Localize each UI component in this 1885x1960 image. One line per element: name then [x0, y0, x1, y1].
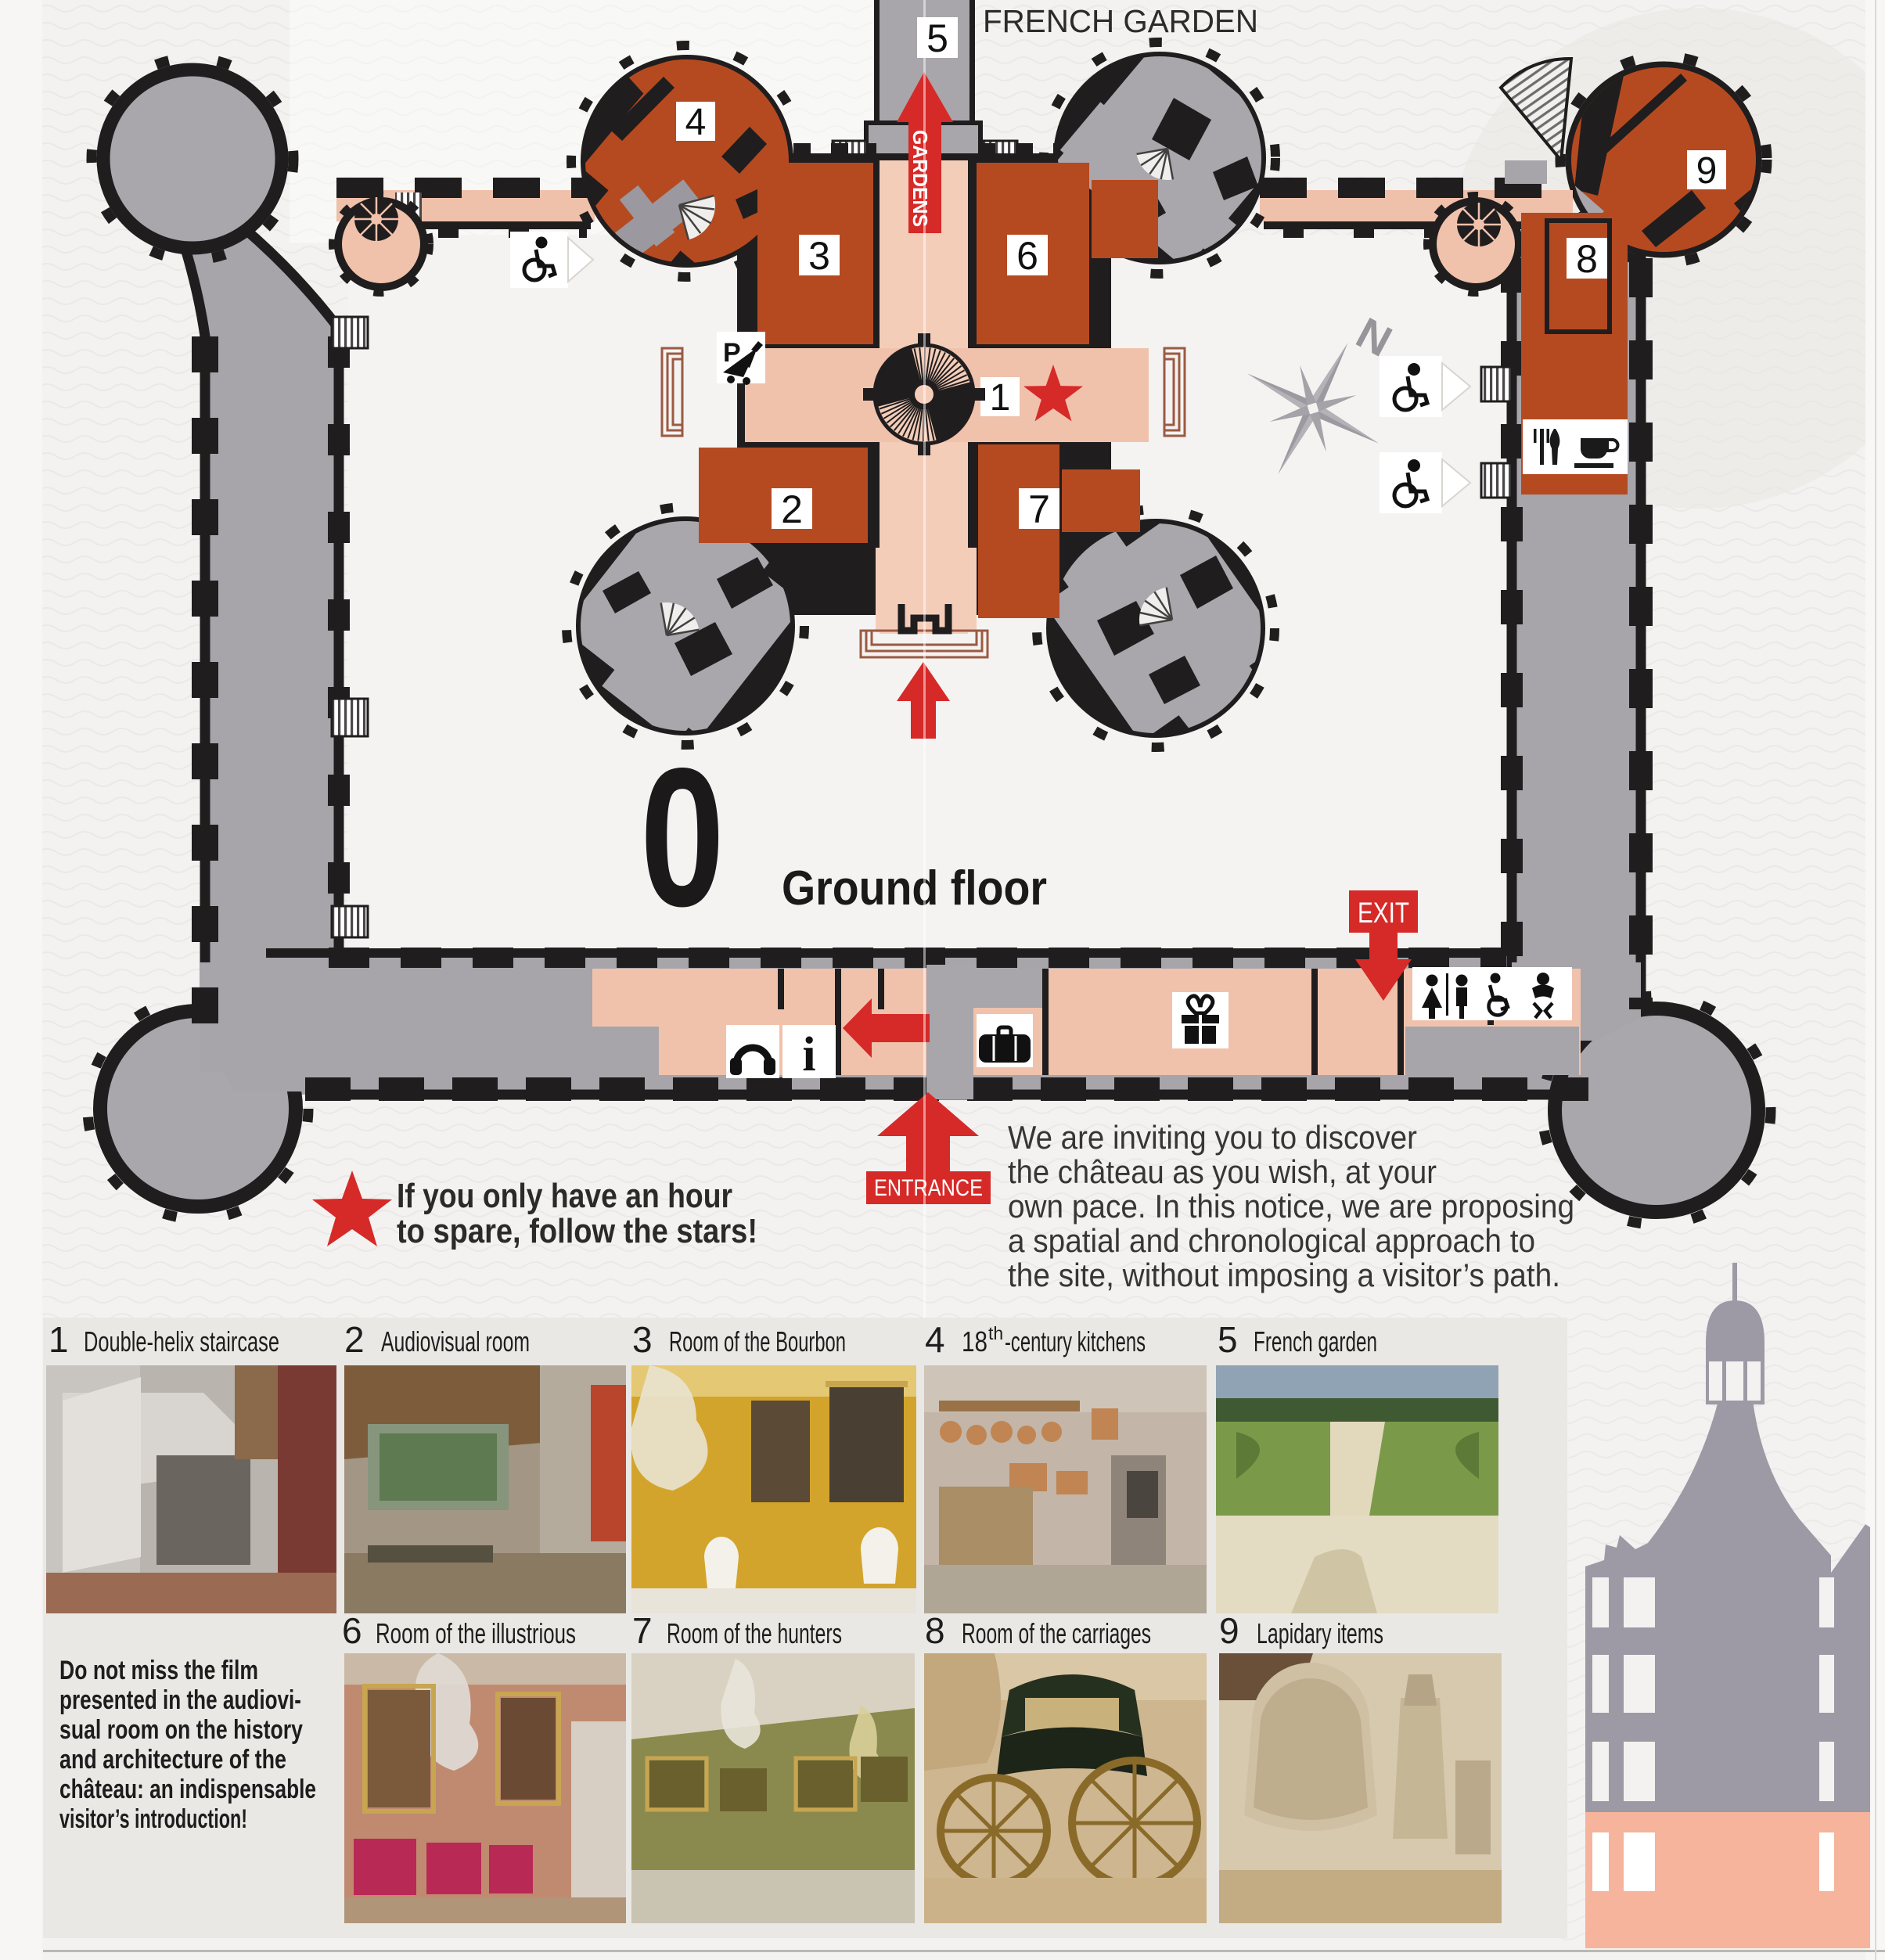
svg-text:FRENCH GARDEN: FRENCH GARDEN [983, 3, 1258, 39]
svg-text:EXIT: EXIT [1358, 897, 1409, 929]
svg-text:3: 3 [808, 234, 830, 278]
svg-text:Audiovisual room: Audiovisual room [381, 1325, 530, 1358]
svg-text:1: 1 [990, 377, 1011, 419]
svg-text:th: th [988, 1323, 1003, 1343]
svg-text:We are inviting you to discove: We are inviting you to discover [1008, 1119, 1417, 1156]
svg-text:French garden: French garden [1254, 1325, 1377, 1358]
svg-text:7: 7 [1028, 487, 1050, 531]
svg-text:4: 4 [685, 102, 707, 143]
svg-text:Ground floor: Ground floor [782, 861, 1047, 915]
svg-text:-century kitchens: -century kitchens [1005, 1325, 1146, 1358]
svg-text:Do not miss the film: Do not miss the film [59, 1656, 258, 1685]
svg-text:3: 3 [632, 1319, 653, 1360]
svg-text:7: 7 [632, 1610, 653, 1651]
svg-text:Lapidary items: Lapidary items [1257, 1617, 1383, 1649]
svg-text:0: 0 [640, 728, 725, 948]
svg-text:2: 2 [781, 487, 803, 531]
svg-text:9: 9 [1219, 1610, 1239, 1651]
svg-text:the château as you wish, at yo: the château as you wish, at your [1008, 1153, 1437, 1190]
svg-text:8: 8 [1576, 237, 1598, 281]
svg-text:6: 6 [342, 1610, 362, 1651]
svg-text:Room of the Bourbon: Room of the Bourbon [669, 1325, 846, 1358]
svg-text:4: 4 [925, 1319, 945, 1360]
svg-text:GARDENS: GARDENS [908, 130, 932, 227]
svg-text:i: i [802, 1028, 815, 1081]
svg-text:presented in the audiovi-: presented in the audiovi- [59, 1685, 301, 1715]
svg-text:9: 9 [1696, 150, 1718, 192]
svg-text:Double-helix staircase: Double-helix staircase [84, 1325, 279, 1358]
svg-text:5: 5 [926, 16, 948, 60]
svg-text:and architecture of the: and architecture of the [59, 1745, 286, 1775]
svg-text:6: 6 [1016, 234, 1038, 278]
svg-text:Room of the hunters: Room of the hunters [667, 1617, 842, 1649]
svg-text:2: 2 [344, 1319, 365, 1360]
svg-text:1: 1 [49, 1319, 69, 1360]
svg-text:château: an indispensable: château: an indispensable [59, 1775, 316, 1804]
svg-text:If you only have an hour: If you only have an hour [397, 1177, 732, 1215]
svg-text:the site, without imposing a v: the site, without imposing a visitor’s p… [1008, 1257, 1560, 1293]
svg-text:a spatial and chronological ap: a spatial and chronological approach to [1008, 1222, 1535, 1259]
svg-text:visitor’s introduction!: visitor’s introduction! [59, 1804, 247, 1834]
svg-text:5: 5 [1218, 1319, 1238, 1360]
svg-text:to spare, follow the stars!: to spare, follow the stars! [397, 1212, 757, 1250]
svg-text:sual room on the history: sual room on the history [59, 1715, 303, 1745]
svg-text:ENTRANCE: ENTRANCE [874, 1175, 983, 1201]
svg-text:own pace. In this notice, we a: own pace. In this notice, we are proposi… [1008, 1188, 1574, 1225]
svg-text:Room of the carriages: Room of the carriages [962, 1617, 1151, 1649]
svg-text:Room of the illustrious: Room of the illustrious [376, 1617, 576, 1649]
svg-text:8: 8 [925, 1610, 945, 1651]
svg-text:18: 18 [962, 1325, 987, 1358]
